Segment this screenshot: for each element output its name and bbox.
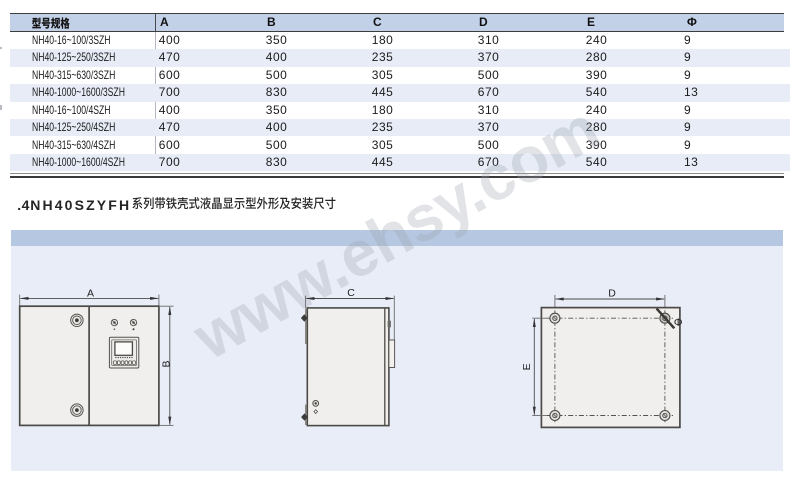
- svg-text:B: B: [160, 360, 172, 367]
- svg-text:E: E: [521, 363, 533, 370]
- svg-text:C: C: [347, 287, 355, 299]
- svg-text:D: D: [608, 287, 616, 299]
- svg-text:A: A: [87, 288, 94, 300]
- svg-text:Φ: Φ: [674, 317, 683, 329]
